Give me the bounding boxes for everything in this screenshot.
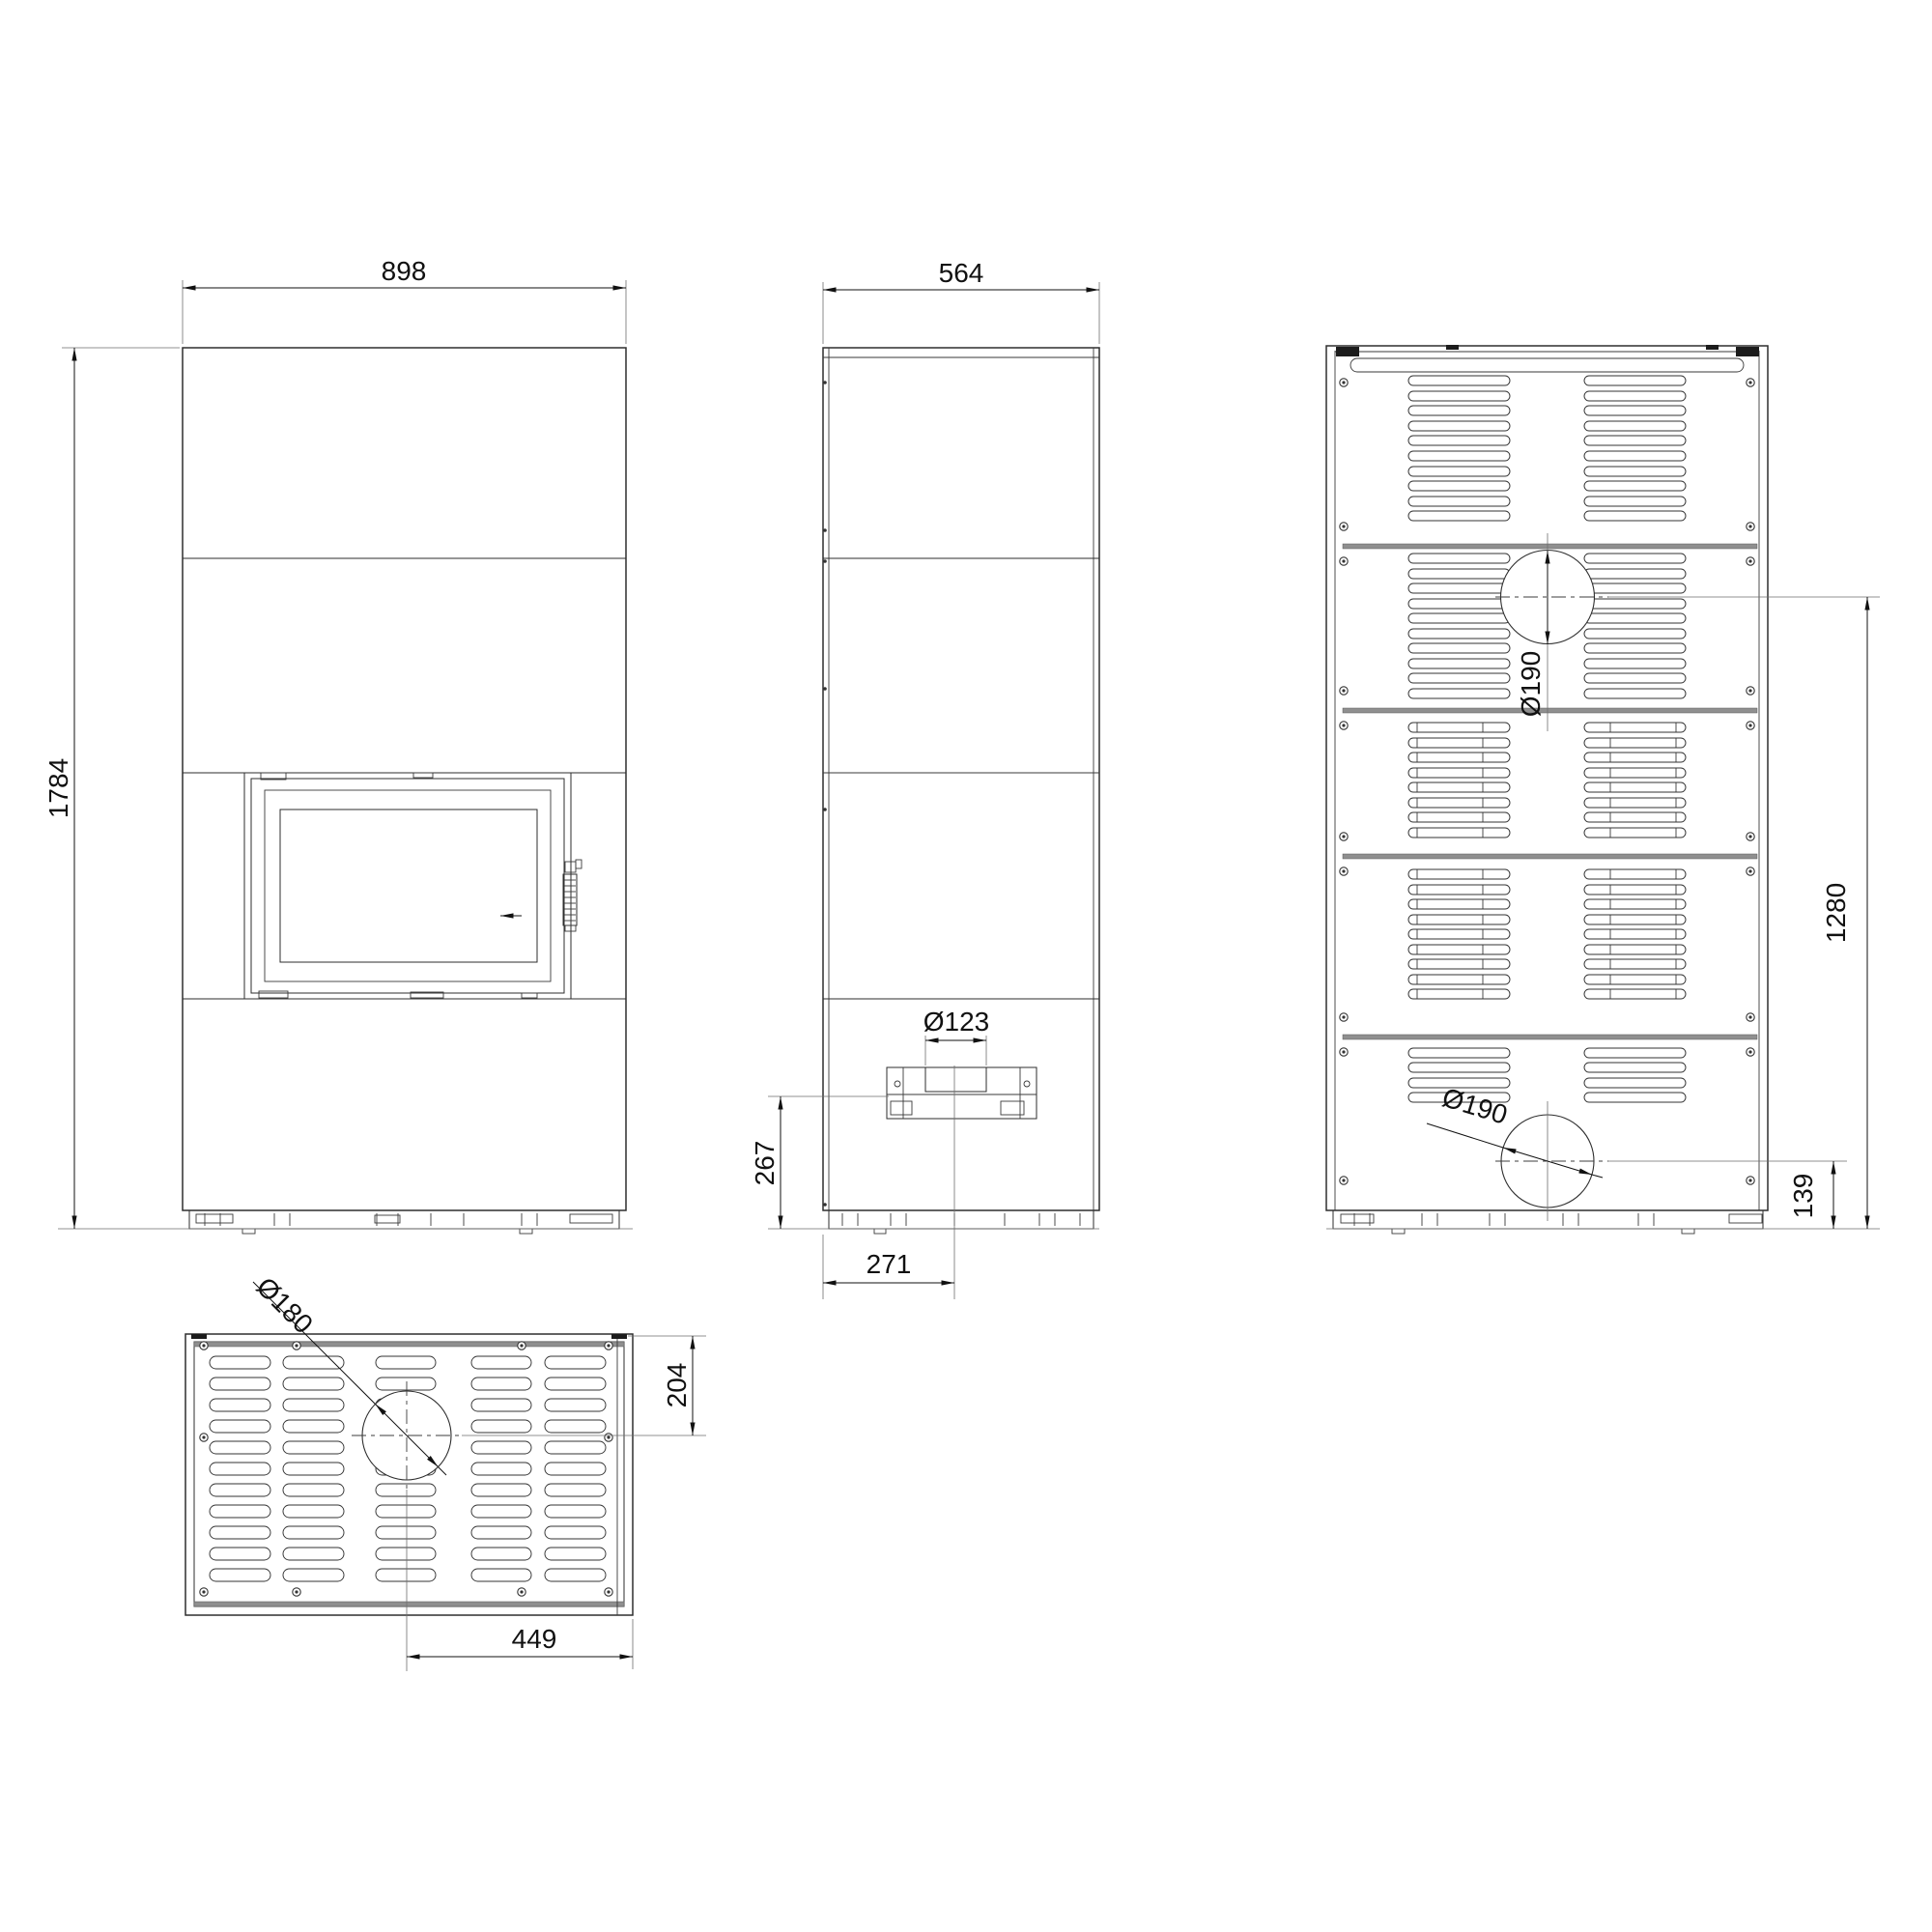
rear-seam-bar [1343, 1035, 1757, 1039]
dim-inlet-diameter: Ø123 [923, 1007, 990, 1065]
dim-top-flue-label: Ø180 [251, 1271, 319, 1339]
door-handle [563, 860, 582, 931]
rear-seam-bar [1343, 544, 1757, 549]
air-inlet-box [887, 1067, 1037, 1119]
dim-inlet-diameter-label: Ø123 [923, 1007, 990, 1037]
side-view: 564 Ø123 267 271 [750, 258, 1099, 1299]
dim-inlet-offset: 271 [823, 1235, 954, 1299]
side-base [829, 1210, 1094, 1234]
dim-inlet-height-label: 267 [750, 1141, 780, 1186]
dim-rear-bottom-flue-label: Ø190 [1438, 1082, 1511, 1130]
fire-door [244, 773, 582, 999]
dim-rear-top-flue-label: Ø190 [1516, 651, 1546, 718]
dim-rear-bottom-flue-height-label: 139 [1788, 1174, 1818, 1219]
door-glass [280, 810, 537, 962]
front-view: 898 1784 [43, 256, 633, 1234]
drawing-sheet: 898 1784 [0, 0, 1932, 1932]
rear-seam-bar [1343, 708, 1757, 713]
rear-view: Ø190 Ø190 1280 139 [1326, 345, 1880, 1234]
rear-top-strip [1350, 358, 1744, 372]
dim-inlet-height: 267 [750, 1096, 889, 1229]
rear-vent-slots [1408, 376, 1686, 1102]
dim-top-flue-offset-x: 449 [407, 1619, 633, 1669]
dim-front-height-label: 1784 [43, 758, 73, 818]
dim-side-depth-label: 564 [939, 258, 984, 288]
dim-top-flue-offset-y: 204 [628, 1336, 706, 1435]
dim-front-width: 898 [183, 256, 626, 344]
front-base [189, 1210, 619, 1234]
side-body-outline [823, 348, 1099, 1210]
technical-drawing-canvas: 898 1784 [0, 0, 1932, 1932]
dim-front-height: 1784 [43, 348, 180, 1229]
top-view: Ø180 204 449 [185, 1271, 706, 1671]
rear-seam-bar [1343, 854, 1757, 859]
dim-rear-flue-height-label: 1280 [1821, 883, 1851, 943]
dim-top-flue-offset-x-label: 449 [512, 1624, 557, 1654]
dim-front-width-label: 898 [382, 256, 427, 286]
rear-screws [1340, 379, 1754, 1184]
air-inlet-stub [925, 1067, 986, 1092]
dim-side-depth: 564 [823, 258, 1099, 344]
rear-body-outline [1326, 346, 1768, 1210]
dim-inlet-offset-label: 271 [867, 1249, 912, 1279]
rear-base [1333, 1210, 1763, 1234]
dim-top-flue-offset-y-label: 204 [662, 1363, 692, 1408]
